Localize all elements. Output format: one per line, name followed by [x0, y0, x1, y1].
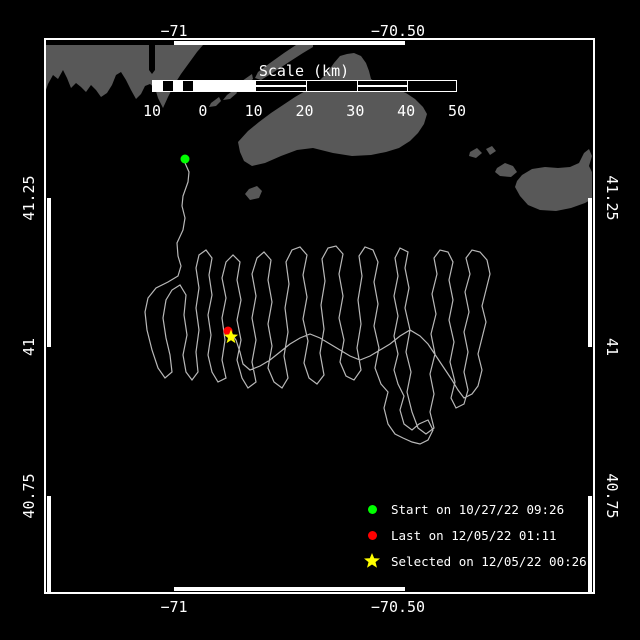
lat-label-left-41: 41 — [20, 338, 38, 356]
legend-item-start: Start on 10/27/22 09:26 — [362, 499, 564, 519]
frame-band-top — [46, 41, 593, 45]
scale-tick-label: 30 — [346, 102, 364, 120]
lat-label-right-4075: 40.75 — [603, 473, 621, 518]
scale-tick-label: 10 — [143, 102, 161, 120]
lat-label-right-4125: 41.25 — [603, 175, 621, 220]
scale-tick-label: 0 — [198, 102, 207, 120]
legend-selected-label: Selected on 12/05/22 00:26 — [391, 554, 587, 569]
frame-band-bottom — [46, 587, 593, 591]
lon-label-bottom-right: −70.50 — [371, 598, 425, 616]
legend-last-label: Last on 12/05/22 01:11 — [391, 528, 557, 543]
scale-tick-label: 50 — [448, 102, 466, 120]
lat-label-left-4125: 41.25 — [20, 175, 38, 220]
lon-label-top-left: −71 — [160, 22, 187, 40]
start-marker-icon — [362, 499, 382, 519]
lon-label-bottom-left: −71 — [160, 598, 187, 616]
scale-bar-ticks: 1001020304050 — [0, 102, 640, 120]
scale-tick-label: 10 — [245, 102, 263, 120]
lat-label-left-4075: 40.75 — [20, 473, 38, 518]
frame-band-left — [47, 40, 51, 592]
tracking-map-screen: { "colors": { "background": "#000000", "… — [0, 0, 640, 640]
scale-bar-title: Scale (km) — [259, 62, 349, 80]
frame-band-right — [588, 40, 592, 592]
scale-tick-label: 40 — [397, 102, 415, 120]
lat-label-right-41: 41 — [603, 338, 621, 356]
legend-item-last: Last on 12/05/22 01:11 — [362, 525, 557, 545]
last-marker-icon — [362, 525, 382, 545]
scale-tick-label: 20 — [295, 102, 313, 120]
selected-star-icon — [362, 551, 382, 571]
legend-start-label: Start on 10/27/22 09:26 — [391, 502, 564, 517]
scale-bar — [152, 80, 457, 92]
lon-label-top-right: −70.50 — [371, 22, 425, 40]
legend-item-selected: Selected on 12/05/22 00:26 — [362, 551, 587, 571]
